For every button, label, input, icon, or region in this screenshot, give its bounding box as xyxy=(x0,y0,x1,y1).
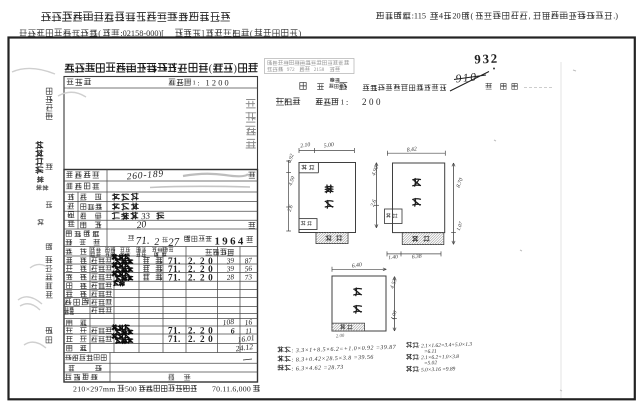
svg-text:27: 27 xyxy=(168,236,180,249)
svg-text:2.6: 2.6 xyxy=(370,199,378,208)
svg-text:2158: 2158 xyxy=(314,67,325,73)
svg-text:1200: 1200 xyxy=(206,79,231,88)
svg-text:8.42: 8.42 xyxy=(406,145,417,153)
svg-text:1964: 1964 xyxy=(215,236,246,248)
svg-text:1.40: 1.40 xyxy=(388,254,398,261)
svg-text:71.: 71. xyxy=(168,334,181,344)
svg-text:(: ( xyxy=(209,63,213,74)
svg-text:: 8.3+0.42×28.5×3.8 =39.56: : 8.3+0.42×28.5×3.8 =39.56 xyxy=(291,354,374,364)
svg-text:.): .) xyxy=(613,11,618,20)
svg-text:20: 20 xyxy=(136,219,147,231)
svg-text:6.38: 6.38 xyxy=(412,254,423,261)
svg-text:70.11.6,000: 70.11.6,000 xyxy=(212,384,251,393)
svg-text:2.: 2. xyxy=(188,272,196,282)
svg-text:2.10: 2.10 xyxy=(300,142,311,149)
svg-text:1: 1 xyxy=(193,79,196,86)
svg-text:24.12: 24.12 xyxy=(235,342,254,353)
svg-text:=5.02: =5.02 xyxy=(424,360,438,366)
svg-text:): ) xyxy=(234,63,237,74)
svg-text:260-189: 260-189 xyxy=(126,169,164,182)
svg-text:20: 20 xyxy=(452,11,460,20)
svg-text:200: 200 xyxy=(362,97,383,107)
svg-text:0.92: 0.92 xyxy=(287,153,296,164)
svg-text:4.90: 4.90 xyxy=(371,165,380,176)
svg-text:2: 2 xyxy=(154,237,160,248)
svg-text:71.: 71. xyxy=(168,272,181,282)
svg-text:6: 6 xyxy=(230,326,235,335)
svg-text:: 3.3×1+8.5×6.2=+1.0×0.92 =39.: : 3.3×1+8.5×6.2=+1.0×0.92 =39.87 xyxy=(291,345,396,355)
svg-text:210×297mm: 210×297mm xyxy=(73,384,116,393)
svg-text:4.53: 4.53 xyxy=(390,278,399,289)
svg-text:73: 73 xyxy=(244,272,253,282)
svg-text:2.00: 2.00 xyxy=(336,334,345,340)
svg-text:6.40: 6.40 xyxy=(351,261,362,269)
svg-text:1.07: 1.07 xyxy=(456,221,465,232)
svg-text:972: 972 xyxy=(287,67,295,73)
svg-text:71.: 71. xyxy=(135,235,150,248)
svg-text:,: , xyxy=(529,11,531,20)
svg-text:28: 28 xyxy=(226,272,235,282)
svg-text:8.70: 8.70 xyxy=(456,177,465,188)
svg-text:500: 500 xyxy=(125,384,137,393)
svg-text:2 0: 2 0 xyxy=(200,334,213,344)
svg-text:5.00: 5.00 xyxy=(323,142,334,149)
svg-text:1.00: 1.00 xyxy=(390,310,399,321)
svg-text::: : xyxy=(346,98,348,107)
svg-text:932: 932 xyxy=(474,52,499,67)
svg-text:: 5.0×3.16 =9.89: : 5.0×3.16 =9.89 xyxy=(418,366,456,373)
svg-text:2.: 2. xyxy=(188,334,196,344)
svg-text::115: :115 xyxy=(412,11,426,20)
svg-text:1: 1 xyxy=(341,98,345,107)
svg-text:2 0: 2 0 xyxy=(200,272,213,282)
svg-text:: 6.3×4.62 =28.73: : 6.3×4.62 =28.73 xyxy=(291,364,343,373)
svg-text:2.6: 2.6 xyxy=(287,204,295,213)
svg-text::: : xyxy=(198,78,200,87)
svg-text:(: ( xyxy=(471,11,474,20)
svg-text:4.50: 4.50 xyxy=(288,175,297,186)
svg-text:4: 4 xyxy=(439,11,444,20)
